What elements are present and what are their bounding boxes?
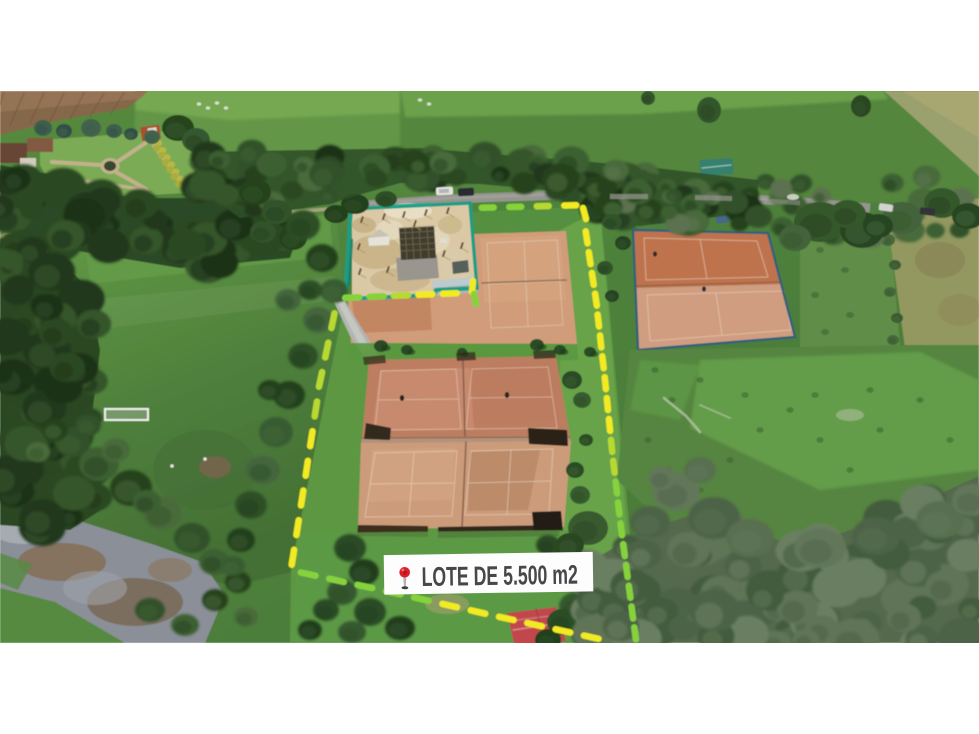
svg-text:LOTE DE 5.500 m2: LOTE DE 5.500 m2	[421, 560, 578, 592]
